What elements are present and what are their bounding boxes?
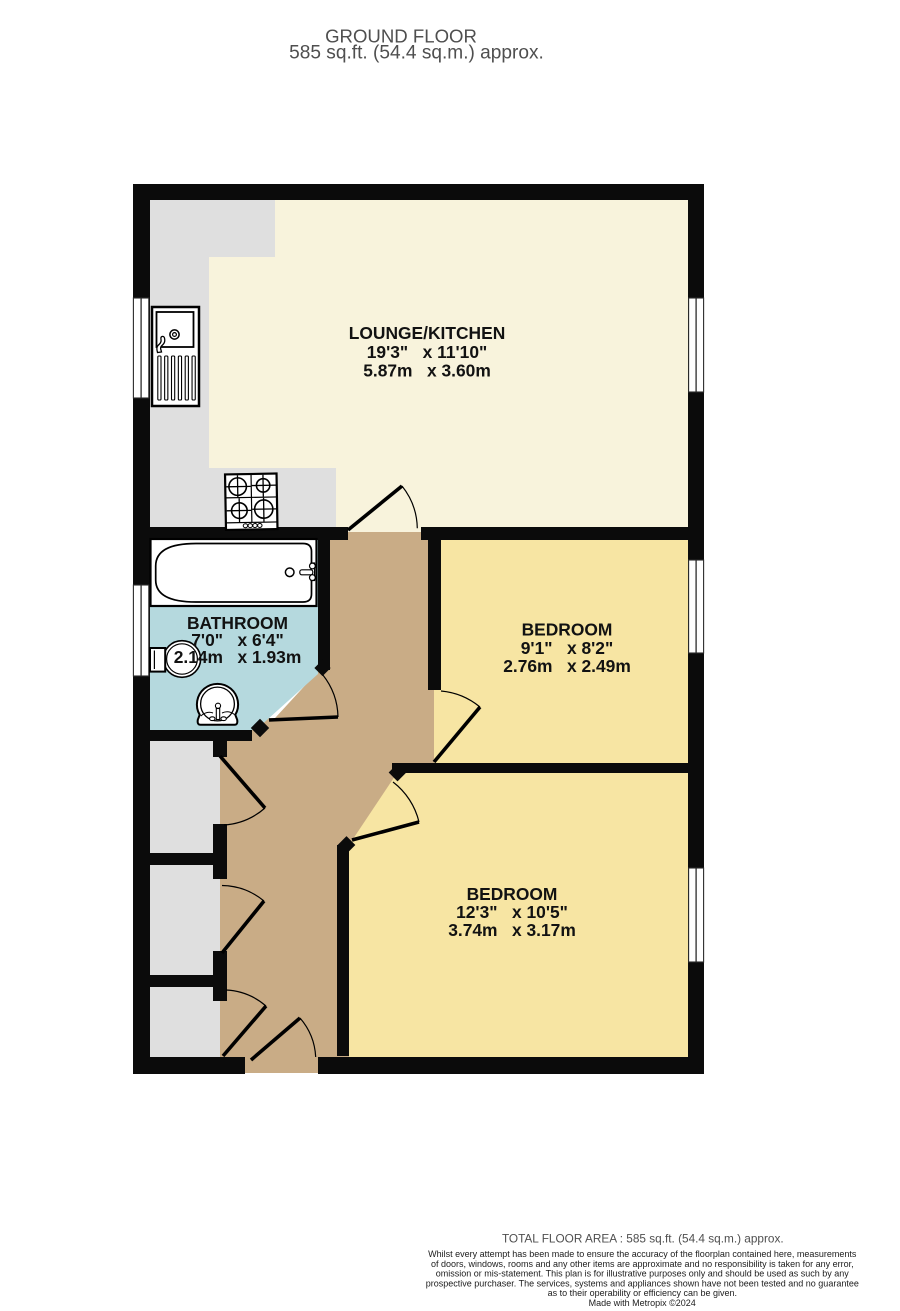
svg-text:Whilst every attempt has been: Whilst every attempt has been made to en… (428, 1249, 857, 1259)
svg-text:prospective purchaser. The ser: prospective purchaser. The services, sys… (426, 1278, 859, 1288)
svg-text:as to their operability or eff: as to their operability or efficiency ca… (548, 1288, 737, 1298)
svg-text:LOUNGE/KITCHEN: LOUNGE/KITCHEN (349, 323, 506, 343)
svg-text:2.76m x 2.49m: 2.76m x 2.49m (503, 656, 631, 676)
svg-text:9'1" x 8'2": 9'1" x 8'2" (521, 638, 613, 658)
svg-text:BEDROOM: BEDROOM (467, 884, 558, 904)
svg-text:of doors, windows, rooms and a: of doors, windows, rooms and any other i… (431, 1259, 854, 1269)
svg-text:3.74m x 3.17m: 3.74m x 3.17m (448, 920, 576, 940)
svg-text:Made with Metropix ©2024: Made with Metropix ©2024 (589, 1298, 696, 1308)
svg-text:12'3" x 10'5": 12'3" x 10'5" (456, 902, 568, 922)
svg-text:omission or mis-statement. Thi: omission or mis-statement. This plan is … (436, 1269, 850, 1279)
svg-text:19'3" x 11'10": 19'3" x 11'10" (367, 342, 488, 362)
svg-text:5.87m x 3.60m: 5.87m x 3.60m (363, 361, 491, 381)
svg-text:TOTAL FLOOR AREA : 585 sq.ft.: TOTAL FLOOR AREA : 585 sq.ft. (54.4 sq.m… (502, 1231, 784, 1245)
svg-text:BEDROOM: BEDROOM (522, 620, 613, 640)
svg-text:2.14m x 1.93m: 2.14m x 1.93m (174, 647, 302, 667)
svg-text:585 sq.ft. (54.4 sq.m.) approx: 585 sq.ft. (54.4 sq.m.) approx. (289, 43, 544, 64)
